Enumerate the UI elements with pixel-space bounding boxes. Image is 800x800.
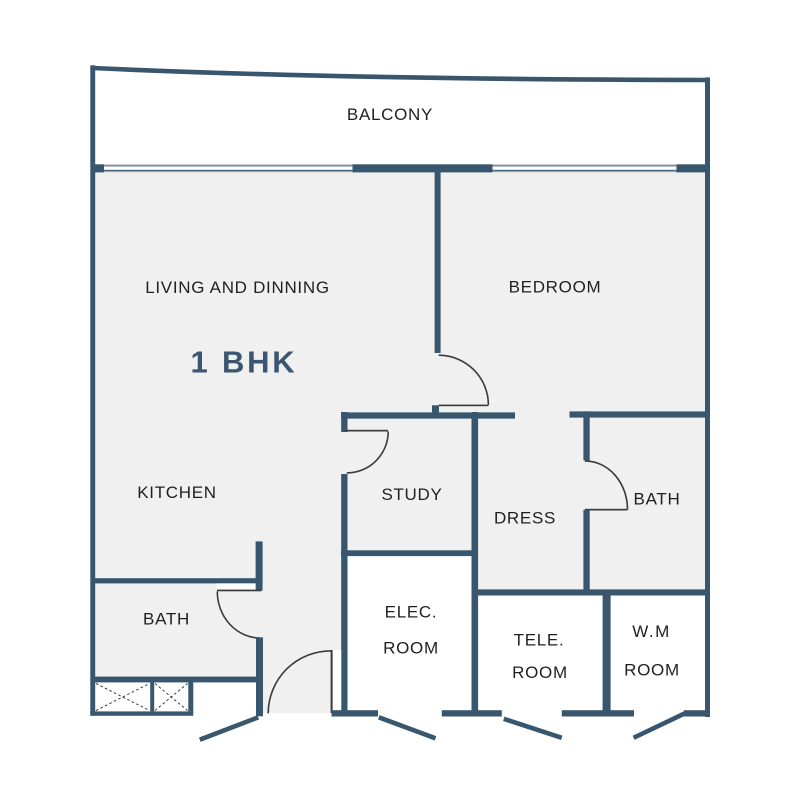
svg-text:1 BHK: 1 BHK <box>190 345 297 380</box>
svg-text:BATH: BATH <box>143 610 190 629</box>
svg-text:BEDROOM: BEDROOM <box>509 278 602 297</box>
svg-text:DRESS: DRESS <box>494 509 556 528</box>
svg-text:LIVING AND DINNING: LIVING AND DINNING <box>145 278 330 297</box>
svg-text:BALCONY: BALCONY <box>347 105 433 124</box>
svg-text:ROOM: ROOM <box>624 661 680 680</box>
svg-text:KITCHEN: KITCHEN <box>137 483 217 502</box>
svg-text:W.M: W.M <box>632 622 671 641</box>
svg-text:TELE.: TELE. <box>514 631 565 650</box>
svg-text:ROOM: ROOM <box>512 663 568 682</box>
svg-text:ROOM: ROOM <box>383 639 439 658</box>
svg-text:STUDY: STUDY <box>381 485 442 504</box>
svg-text:ELEC.: ELEC. <box>385 603 438 622</box>
svg-text:BATH: BATH <box>634 490 681 509</box>
